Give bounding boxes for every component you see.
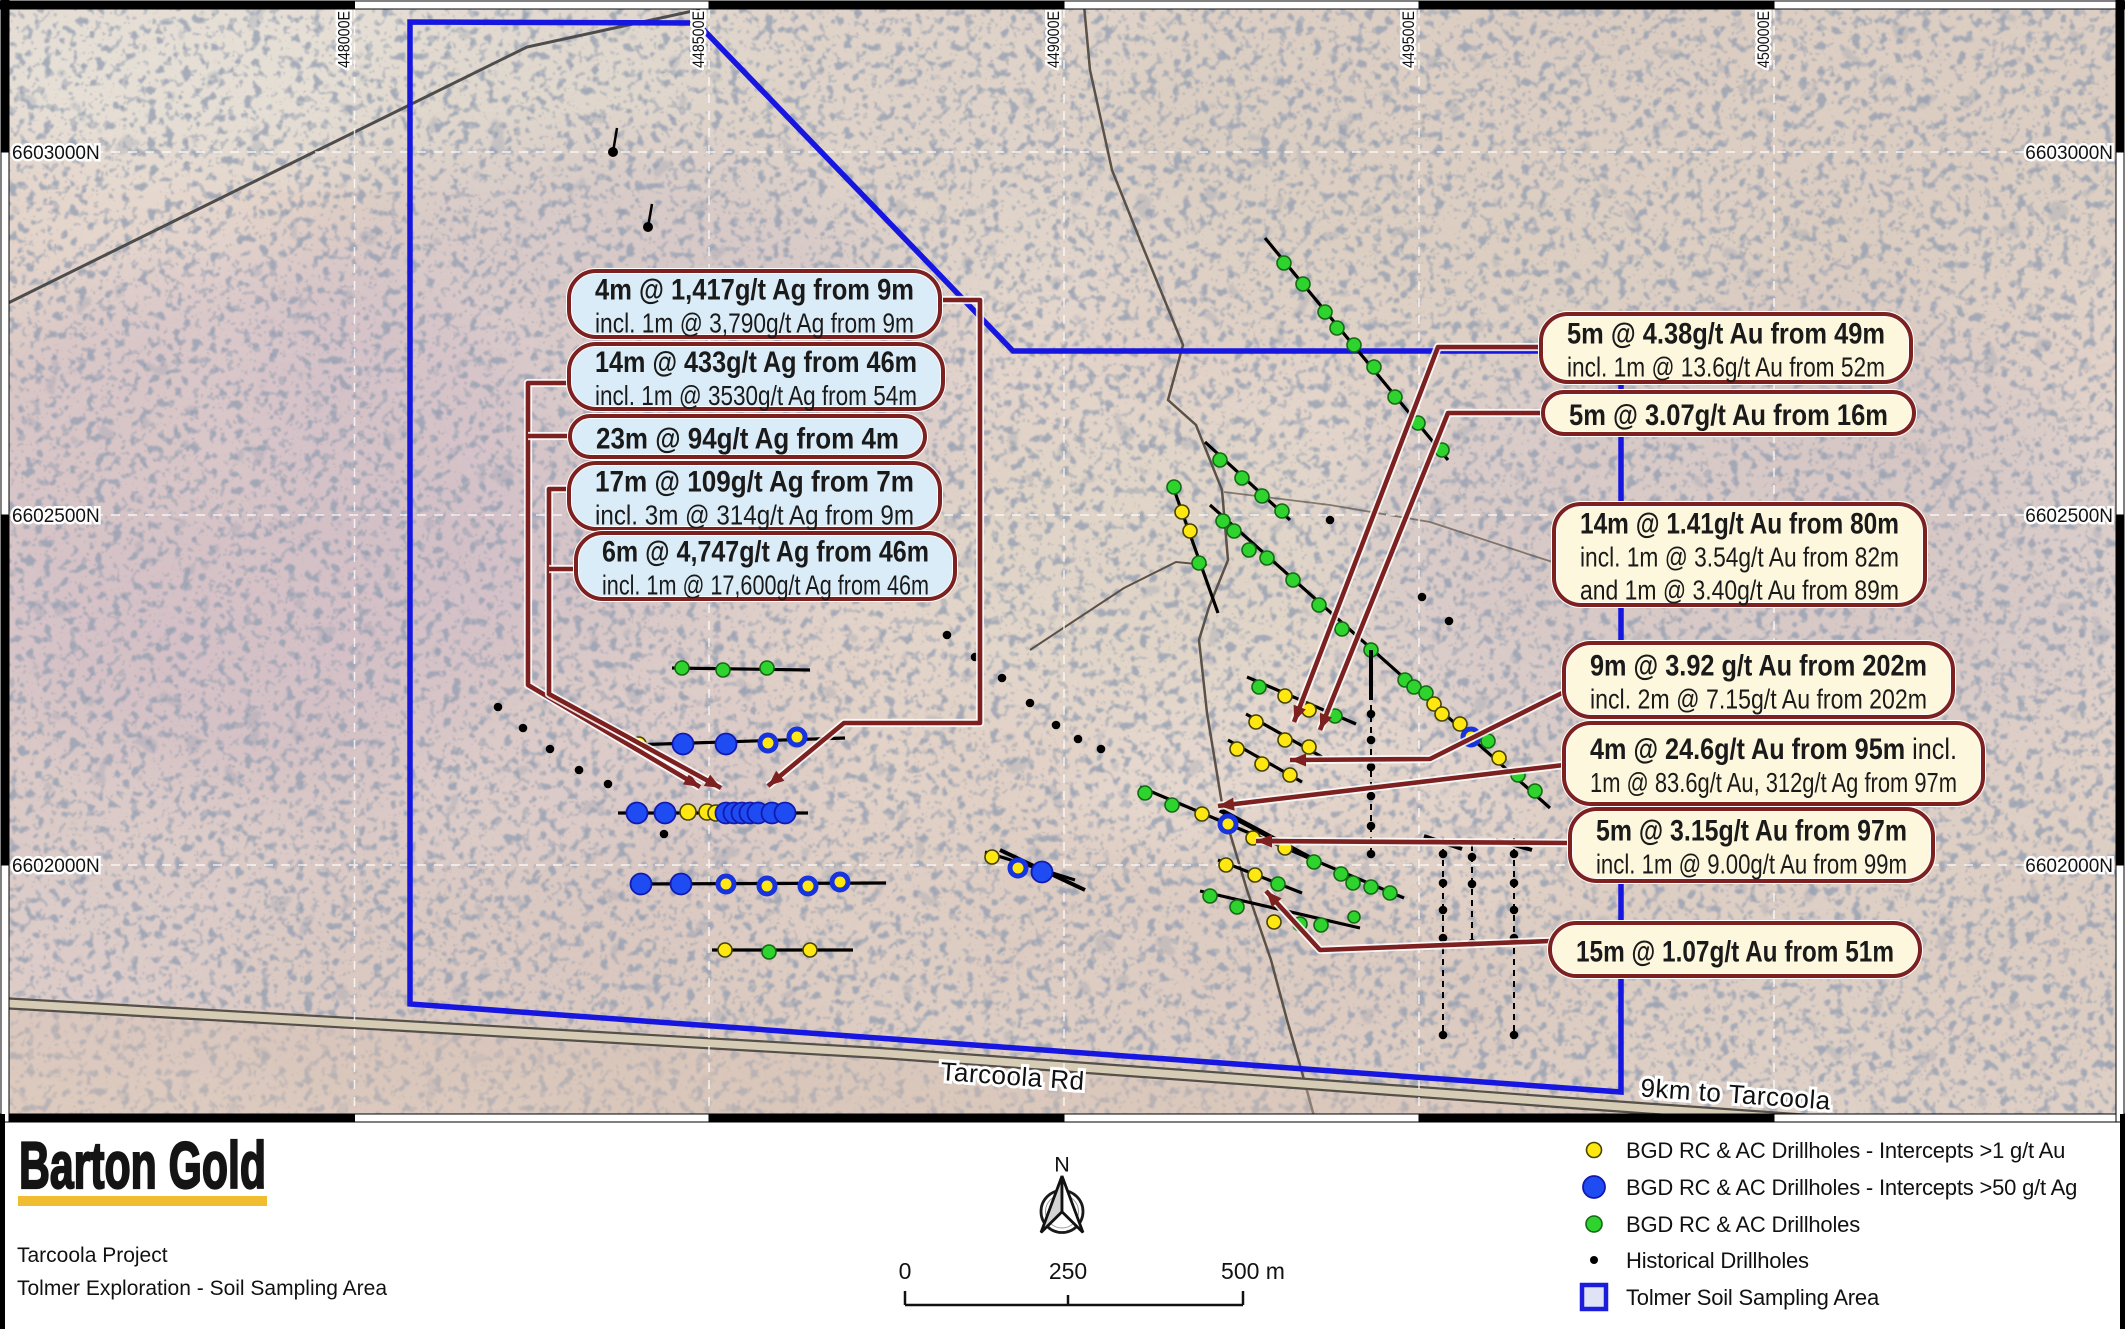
svg-text:BGD RC & AC Drillholes: BGD RC & AC Drillholes — [1626, 1212, 1860, 1237]
svg-text:5m @ 3.15g/t Au from 97m: 5m @ 3.15g/t Au from 97m — [1596, 814, 1907, 847]
svg-text:448500E: 448500E — [690, 11, 708, 68]
svg-text:6603000N: 6603000N — [12, 143, 100, 164]
svg-text:incl. 1m @ 17,600g/t Ag from 4: incl. 1m @ 17,600g/t Ag from 46m — [602, 569, 929, 600]
svg-text:449000E: 449000E — [1045, 11, 1063, 68]
svg-text:BGD RC & AC Drillholes - Inter: BGD RC & AC Drillholes - Intercepts >1 g… — [1626, 1138, 2065, 1163]
svg-text:9m @ 3.92 g/t Au from 202m: 9m @ 3.92 g/t Au from 202m — [1590, 649, 1927, 682]
svg-text:incl. 1m @ 3.54g/t Au from 82m: incl. 1m @ 3.54g/t Au from 82m — [1580, 541, 1899, 572]
svg-text:448000E: 448000E — [336, 11, 354, 68]
svg-text:N: N — [1054, 1153, 1070, 1177]
svg-text:500 m: 500 m — [1221, 1258, 1285, 1284]
svg-text:Tolmer Exploration - Soil Samp: Tolmer Exploration - Soil Sampling Area — [17, 1277, 387, 1300]
svg-text:4m @ 24.6g/t Au from 95m incl.: 4m @ 24.6g/t Au from 95m incl. — [1590, 733, 1957, 766]
svg-text:6603000N: 6603000N — [2025, 143, 2113, 164]
svg-text:6m @ 4,747g/t Ag from 46m: 6m @ 4,747g/t Ag from 46m — [602, 535, 929, 568]
svg-text:449500E: 449500E — [1400, 11, 1418, 68]
svg-text:23m @ 94g/t Ag from 4m: 23m @ 94g/t Ag from 4m — [596, 422, 899, 455]
svg-text:5m @ 4.38g/t Au from 49m: 5m @ 4.38g/t Au from 49m — [1567, 317, 1885, 350]
svg-text:incl. 1m @ 13.6g/t Au from 52m: incl. 1m @ 13.6g/t Au from 52m — [1567, 351, 1885, 382]
svg-text:BGD RC & AC Drillholes - Inter: BGD RC & AC Drillholes - Intercepts >50 … — [1626, 1175, 2077, 1200]
svg-text:0: 0 — [899, 1258, 912, 1284]
svg-text:4m @ 1,417g/t Ag from 9m: 4m @ 1,417g/t Ag from 9m — [595, 273, 914, 306]
svg-text:incl. 1m @ 9.00g/t Au from 99m: incl. 1m @ 9.00g/t Au from 99m — [1596, 848, 1907, 879]
svg-text:6602500N: 6602500N — [2025, 506, 2113, 527]
svg-text:incl. 3m @ 314g/t Ag from 9m: incl. 3m @ 314g/t Ag from 9m — [595, 499, 914, 530]
svg-text:incl. 1m @ 3,790g/t Ag from 9m: incl. 1m @ 3,790g/t Ag from 9m — [595, 307, 914, 338]
svg-text:Barton Gold: Barton Gold — [19, 1128, 266, 1202]
svg-text:incl. 1m @ 3530g/t Ag from 54m: incl. 1m @ 3530g/t Ag from 54m — [595, 380, 917, 411]
svg-text:15m @ 1.07g/t Au from 51m: 15m @ 1.07g/t Au from 51m — [1576, 935, 1894, 968]
svg-text:incl. 2m @ 7.15g/t Au from 202: incl. 2m @ 7.15g/t Au from 202m — [1590, 683, 1927, 714]
svg-text:Historical Drillholes: Historical Drillholes — [1626, 1248, 1809, 1273]
svg-text:6602000N: 6602000N — [12, 856, 100, 877]
svg-text:450000E: 450000E — [1755, 11, 1773, 68]
svg-text:1m @ 83.6g/t Au, 312g/t Ag fro: 1m @ 83.6g/t Au, 312g/t Ag from 97m — [1590, 767, 1957, 798]
svg-text:5m @ 3.07g/t Au from 16m: 5m @ 3.07g/t Au from 16m — [1569, 399, 1888, 432]
svg-text:14m @ 1.41g/t Au from 80m: 14m @ 1.41g/t Au from 80m — [1580, 507, 1899, 540]
svg-text:Tolmer Soil Sampling Area: Tolmer Soil Sampling Area — [1626, 1285, 1880, 1310]
svg-text:14m @ 433g/t Ag from 46m: 14m @ 433g/t Ag from 46m — [595, 346, 917, 379]
svg-text:and 1m @ 3.40g/t Au from 89m: and 1m @ 3.40g/t Au from 89m — [1580, 574, 1899, 605]
svg-text:250: 250 — [1049, 1258, 1087, 1284]
svg-text:Tarcoola Project: Tarcoola Project — [17, 1244, 168, 1267]
svg-text:17m @ 109g/t Ag from 7m: 17m @ 109g/t Ag from 7m — [595, 465, 914, 498]
svg-text:6602500N: 6602500N — [12, 506, 100, 527]
svg-text:6602000N: 6602000N — [2025, 856, 2113, 877]
